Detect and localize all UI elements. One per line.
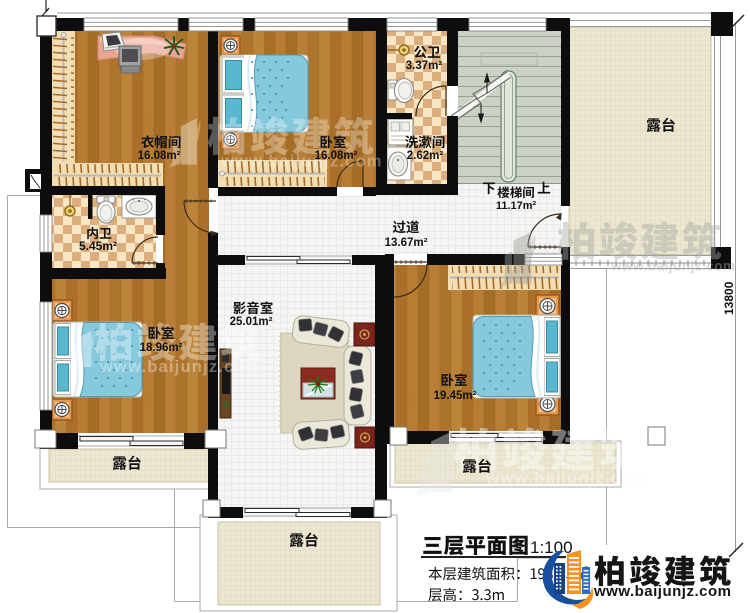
svg-text:3.37m²: 3.37m²	[406, 60, 443, 72]
svg-text:www.baijunjz.com: www.baijunjz.com	[99, 358, 262, 376]
svg-text:www.baijunjz.com: www.baijunjz.com	[610, 259, 736, 274]
svg-text:www.baijunjz.com: www.baijunjz.com	[220, 153, 383, 171]
svg-text:16.08m²: 16.08m²	[315, 150, 358, 162]
svg-text:13800: 13800	[722, 281, 736, 315]
svg-text:19.45m²: 19.45m²	[434, 390, 477, 402]
svg-text:11.17m²: 11.17m²	[496, 200, 537, 212]
svg-text:13.67m²: 13.67m²	[385, 237, 428, 249]
svg-text:25.01m²: 25.01m²	[230, 316, 273, 328]
svg-text:18.96m²: 18.96m²	[140, 342, 183, 354]
svg-text:www.baijunjz.com: www.baijunjz.com	[485, 469, 649, 488]
svg-text:www.baijunjz.com: www.baijunjz.com	[593, 583, 731, 600]
svg-text:5.45m²: 5.45m²	[79, 239, 117, 253]
svg-text:2.62m²: 2.62m²	[407, 150, 444, 162]
svg-text:1:100: 1:100	[530, 538, 573, 557]
svg-text:16.08m²: 16.08m²	[138, 150, 181, 162]
